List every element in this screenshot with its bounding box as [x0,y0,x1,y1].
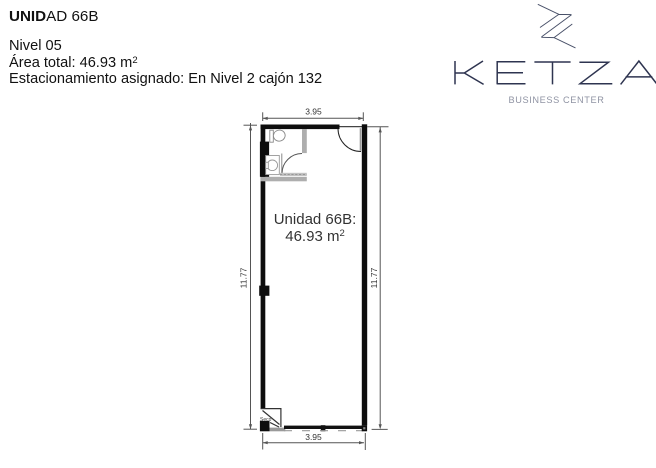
svg-text:BUSINESS CENTER: BUSINESS CENTER [508,95,604,105]
svg-text:11.77: 11.77 [369,267,379,288]
svg-text:11.77: 11.77 [238,267,248,288]
svg-text:3.95: 3.95 [305,107,322,117]
svg-text:3.95: 3.95 [305,432,322,442]
